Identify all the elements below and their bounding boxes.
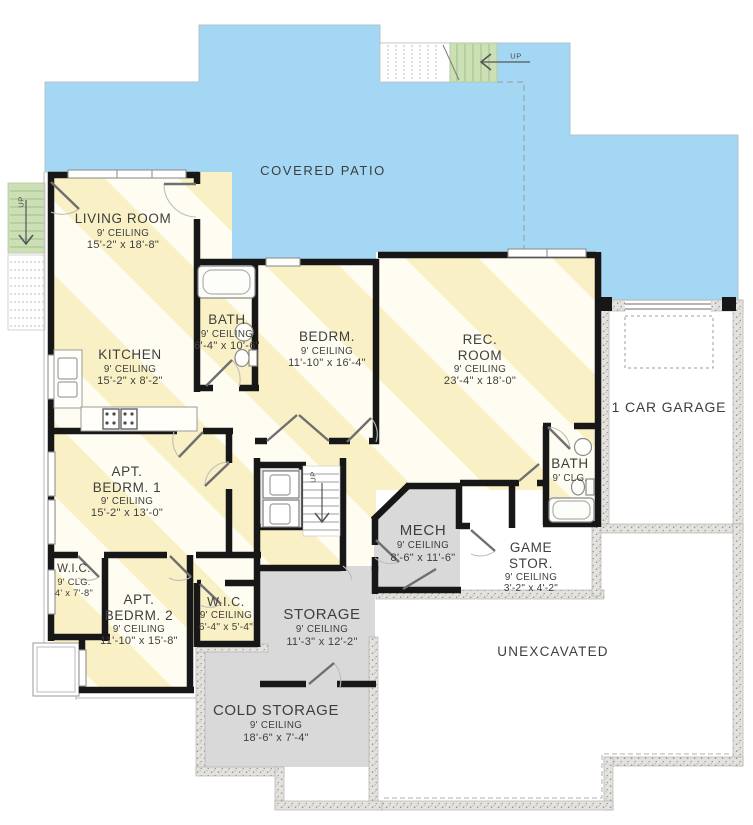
cold-storage-label: COLD STORAGE 9' CEILING 18'-6" x 7'-4" (213, 702, 339, 744)
room-name: BATH (194, 312, 260, 328)
room-name: APT. (91, 464, 163, 480)
room-name: APT. (100, 592, 178, 608)
unexcavated-label: UNEXCAVATED (497, 644, 608, 660)
room-size: 4' x 7'-8" (55, 588, 93, 599)
room-name: BEDRM. (288, 329, 366, 345)
apt-bedroom-2-label: APT. BEDRM. 2 9' CEILING 11'-10" x 15'-8… (100, 592, 178, 648)
room-ceiling: 9' CEILING (100, 624, 178, 635)
room-size: 15'-2" x 8'-2" (97, 375, 163, 388)
lower-bath-label: BATH 9' CLG. (551, 456, 588, 484)
room-name: GAME (504, 540, 558, 556)
rec-room-label: REC. ROOM 9' CEILING 23'-4" x 18'-0" (444, 332, 516, 388)
room-ceiling: 9' CEILING (75, 228, 172, 239)
exterior-stairs-left (8, 183, 45, 330)
room-ceiling: 9' CEILING (97, 364, 163, 375)
room-ceiling: 9' CLG. (551, 473, 588, 484)
wic-right-label: W.I.C. 9' CEILING 6'-4" x 5'-4" (199, 595, 253, 633)
room-name: LIVING ROOM (75, 211, 172, 227)
storage-label: STORAGE 9' CEILING 11'-3" x 12'-2" (283, 606, 360, 648)
room-size: 15'-2" x 13'-0" (91, 507, 163, 520)
center-stairs (261, 466, 340, 536)
stairs-up-label-top: UP (510, 52, 521, 61)
room-ceiling: 9' CEILING (444, 364, 516, 375)
room-size: 6'-4" x 10'-6" (194, 340, 260, 353)
room-ceiling: 9' CLG. (55, 577, 93, 588)
room-ceiling: 9' CEILING (391, 540, 456, 551)
bathtub-icon (198, 266, 255, 298)
room-size: 3'-2" x 4'-2" (504, 583, 558, 595)
upper-bath-label: BATH 9' CEILING 6'-4" x 10'-6" (194, 312, 260, 352)
floor-plan: COVERED PATIO LIVING ROOM 9' CEILING 15'… (0, 0, 753, 825)
room-name: ROOM (444, 348, 516, 364)
sink-icon (575, 439, 592, 456)
room-size: 8'-6" x 11'-6" (391, 552, 456, 565)
room-size: 18'-6" x 7'-4" (213, 732, 339, 745)
room-name: W.I.C. (199, 595, 253, 609)
room-ceiling: 9' CEILING (213, 720, 339, 731)
window-well (33, 643, 79, 696)
room-name: BEDRM. 2 (100, 608, 178, 624)
room-ceiling: 9' CEILING (199, 610, 253, 621)
room-name: COLD STORAGE (213, 702, 339, 719)
bedroom-label: BEDRM. 9' CEILING 11'-10" x 16'-4" (288, 329, 366, 369)
covered-patio-label: COVERED PATIO (260, 164, 386, 179)
wic-left-label: W.I.C. 9' CLG. 4' x 7'-8" (55, 563, 93, 599)
room-size: 11'-10" x 16'-4" (288, 357, 366, 370)
garage-label: 1 CAR GARAGE (612, 399, 727, 415)
room-ceiling: 9' CEILING (504, 572, 558, 583)
room-ceiling: 9' CEILING (194, 329, 260, 340)
room-name: BEDRM. 1 (91, 480, 163, 496)
room-name: BATH (551, 456, 588, 472)
room-size: 11'-10" x 15'-8" (100, 635, 178, 648)
room-name: REC. (444, 332, 516, 348)
room-ceiling: 9' CEILING (91, 496, 163, 507)
room-ceiling: 9' CEILING (283, 624, 360, 635)
living-room-label: LIVING ROOM 9' CEILING 15'-2" x 18'-8" (75, 211, 172, 251)
kitchen-label: KITCHEN 9' CEILING 15'-2" x 8'-2" (97, 347, 163, 387)
room-size: 11'-3" x 12'-2" (283, 636, 360, 649)
room-ceiling: 9' CEILING (288, 346, 366, 357)
game-storage-label: GAME STOR. 9' CEILING 3'-2" x 4'-2" (504, 540, 558, 595)
room-name: STOR. (504, 556, 558, 572)
stairs-up-label-left: UP (17, 196, 26, 207)
room-size: 15'-2" x 18'-8" (75, 239, 172, 252)
apt-bedroom-1-label: APT. BEDRM. 1 9' CEILING 15'-2" x 13'-0" (91, 464, 163, 520)
room-name: KITCHEN (97, 347, 163, 363)
room-size: 6'-4" x 5'-4" (199, 622, 253, 634)
room-size: 23'-4" x 18'-0" (444, 375, 516, 388)
room-name: W.I.C. (55, 563, 93, 576)
stairs-up-label-center: UP (309, 471, 318, 482)
room-name: STORAGE (283, 606, 360, 623)
room-name: MECH (391, 522, 456, 539)
mech-label: MECH 9' CEILING 8'-6" x 11'-6" (391, 522, 456, 564)
